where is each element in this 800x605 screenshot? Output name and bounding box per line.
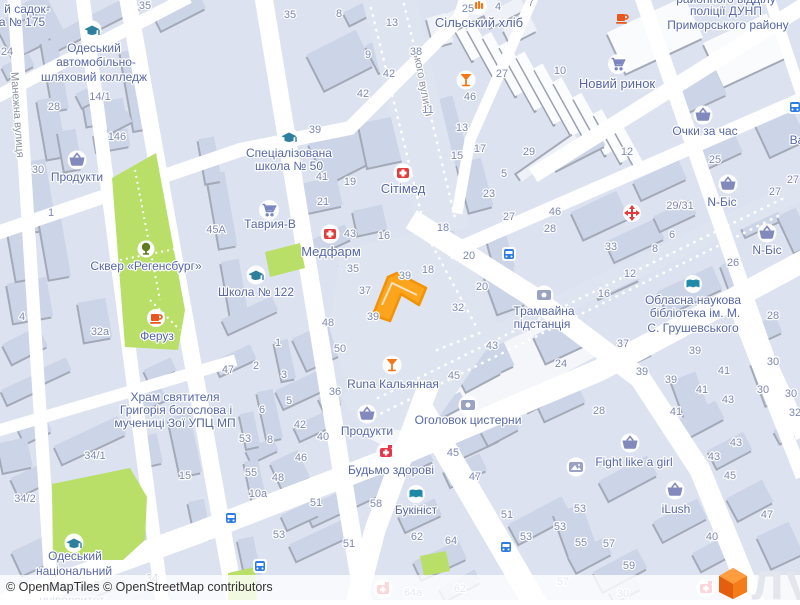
svg-text:47: 47: [761, 509, 773, 521]
svg-text:N-Біс: N-Біс: [752, 243, 781, 257]
svg-text:34/2: 34/2: [14, 493, 35, 505]
svg-text:27: 27: [787, 174, 799, 186]
svg-text:46: 46: [549, 206, 561, 218]
svg-text:41: 41: [670, 406, 682, 418]
svg-text:43: 43: [730, 437, 742, 449]
svg-text:45: 45: [448, 370, 460, 382]
svg-text:28: 28: [593, 405, 605, 417]
svg-text:30: 30: [757, 384, 769, 396]
svg-text:Сітімед: Сітімед: [381, 181, 426, 196]
svg-text:45: 45: [724, 470, 736, 482]
svg-text:Медфарм: Медфарм: [301, 244, 361, 259]
svg-text:6: 6: [669, 229, 675, 241]
svg-text:39: 39: [689, 345, 701, 357]
svg-text:146: 146: [108, 131, 126, 143]
svg-text:41: 41: [696, 384, 708, 396]
svg-text:Букініст: Букініст: [395, 503, 438, 517]
svg-text:Одеський: Одеський: [48, 549, 102, 563]
svg-text:47: 47: [469, 471, 481, 483]
svg-text:Runa Кальянная: Runa Кальянная: [347, 377, 439, 391]
svg-text:35: 35: [139, 0, 151, 12]
svg-text:8: 8: [336, 8, 342, 20]
svg-text:16: 16: [378, 230, 390, 242]
svg-text:5: 5: [286, 395, 292, 407]
svg-text:55: 55: [245, 467, 257, 479]
svg-text:39: 39: [309, 124, 321, 136]
svg-text:28: 28: [767, 310, 779, 322]
svg-text:24: 24: [1, 46, 13, 58]
svg-text:20: 20: [476, 281, 488, 293]
svg-text:53: 53: [554, 521, 566, 533]
svg-text:41: 41: [316, 171, 328, 183]
svg-text:43: 43: [486, 340, 498, 352]
svg-text:62: 62: [411, 531, 423, 543]
svg-text:N-Біс: N-Біс: [707, 195, 736, 209]
svg-text:й садок-: й садок-: [4, 2, 50, 16]
svg-text:37: 37: [359, 285, 371, 297]
svg-text:45: 45: [447, 447, 459, 459]
svg-text:Новий ринок: Новий ринок: [579, 76, 656, 91]
svg-text:2: 2: [253, 360, 259, 372]
svg-text:29: 29: [523, 146, 535, 158]
svg-text:48: 48: [322, 317, 334, 329]
svg-text:46: 46: [464, 91, 476, 103]
svg-text:Оголовок цистерни: Оголовок цистерни: [415, 413, 522, 427]
svg-text:43: 43: [344, 228, 356, 240]
svg-text:29/31: 29/31: [666, 200, 694, 212]
svg-text:41: 41: [718, 365, 730, 377]
svg-text:35: 35: [347, 263, 359, 275]
svg-text:46: 46: [295, 452, 307, 464]
svg-text:17: 17: [474, 143, 486, 155]
svg-text:32: 32: [789, 407, 800, 419]
svg-text:15: 15: [451, 150, 463, 162]
svg-text:Ва: Ва: [790, 133, 800, 147]
svg-text:5: 5: [501, 168, 507, 180]
svg-text:35: 35: [284, 9, 296, 21]
svg-text:лун: лун: [751, 553, 800, 600]
svg-text:55: 55: [575, 537, 587, 549]
svg-text:53: 53: [273, 529, 285, 541]
svg-text:39: 39: [636, 366, 648, 378]
svg-text:iLush: iLush: [662, 502, 691, 516]
svg-text:1: 1: [48, 207, 54, 219]
svg-text:8: 8: [652, 243, 658, 255]
svg-text:20: 20: [463, 250, 475, 262]
svg-text:шляховий колледж: шляховий колледж: [41, 70, 147, 84]
svg-text:42: 42: [294, 419, 306, 431]
svg-text:12: 12: [621, 146, 633, 158]
svg-text:33: 33: [605, 241, 617, 253]
svg-text:Продукти: Продукти: [341, 424, 393, 438]
svg-text:11: 11: [422, 104, 433, 116]
svg-text:7: 7: [528, 0, 534, 9]
svg-text:16: 16: [598, 288, 610, 300]
svg-text:Таврия-В: Таврия-В: [244, 217, 296, 231]
svg-text:15: 15: [179, 470, 191, 482]
svg-text:43: 43: [722, 394, 734, 406]
svg-text:12: 12: [624, 268, 636, 280]
svg-text:Очки за час: Очки за час: [672, 124, 737, 138]
svg-text:13: 13: [386, 17, 398, 29]
svg-text:19: 19: [344, 176, 356, 188]
svg-text:40: 40: [317, 431, 329, 443]
svg-text:30: 30: [785, 388, 797, 400]
svg-text:30: 30: [767, 356, 779, 368]
svg-text:42: 42: [383, 68, 395, 80]
svg-text:Григорія богослова і: Григорія богослова і: [120, 403, 232, 417]
svg-text:підстанція: підстанція: [514, 317, 571, 331]
svg-text:53: 53: [574, 503, 586, 515]
svg-text:48: 48: [272, 472, 284, 484]
svg-text:32: 32: [452, 302, 464, 314]
svg-text:53: 53: [520, 531, 532, 543]
svg-text:© OpenMapTiles © OpenStreetMap: © OpenMapTiles © OpenStreetMap contribut…: [6, 580, 273, 594]
svg-text:18: 18: [437, 222, 449, 234]
svg-text:28: 28: [544, 223, 556, 235]
svg-text:43: 43: [708, 451, 720, 463]
svg-text:а № 175: а № 175: [0, 15, 45, 29]
svg-text:Феруз: Феруз: [140, 329, 174, 343]
svg-text:13: 13: [456, 122, 468, 134]
svg-text:14/1: 14/1: [89, 91, 110, 103]
svg-text:32a: 32a: [91, 326, 110, 338]
svg-text:36: 36: [329, 386, 341, 398]
svg-text:51: 51: [343, 538, 355, 550]
svg-text:23: 23: [483, 188, 495, 200]
svg-text:школа № 50: школа № 50: [255, 159, 323, 173]
svg-text:6: 6: [259, 404, 265, 416]
svg-text:Будьмо здорові: Будьмо здорові: [348, 463, 434, 477]
svg-text:50: 50: [334, 343, 346, 355]
svg-text:58: 58: [370, 498, 382, 510]
svg-text:Храм святителя: Храм святителя: [130, 390, 219, 404]
svg-text:26: 26: [727, 257, 739, 269]
svg-text:мучениці Зої УПЦ МП: мучениці Зої УПЦ МП: [114, 416, 235, 430]
svg-text:10: 10: [554, 65, 566, 77]
svg-text:поліції ДУНП: поліції ДУНП: [690, 4, 762, 18]
svg-text:57: 57: [603, 538, 615, 550]
svg-text:39: 39: [665, 374, 677, 386]
svg-text:4: 4: [495, 1, 501, 13]
svg-text:30: 30: [32, 164, 44, 176]
svg-text:39: 39: [367, 311, 379, 323]
svg-text:39: 39: [399, 270, 411, 282]
svg-text:25: 25: [462, 3, 474, 15]
svg-text:4: 4: [19, 311, 25, 323]
svg-text:45A: 45A: [206, 224, 226, 236]
svg-text:Fight like a girl: Fight like a girl: [595, 455, 672, 469]
svg-text:Школа № 122: Школа № 122: [218, 285, 294, 299]
svg-text:51: 51: [501, 509, 513, 521]
svg-text:24: 24: [555, 358, 567, 370]
svg-text:51: 51: [310, 497, 322, 509]
svg-text:Приморського району: Приморського району: [667, 18, 788, 32]
svg-text:Продукти: Продукти: [51, 170, 103, 184]
svg-text:59: 59: [623, 560, 635, 572]
svg-text:37: 37: [617, 338, 629, 350]
svg-text:Сільський хліб: Сільський хліб: [435, 15, 523, 30]
svg-text:10a: 10a: [249, 488, 268, 500]
svg-text:47: 47: [222, 364, 234, 376]
svg-text:9: 9: [365, 49, 371, 61]
svg-text:3: 3: [281, 369, 287, 381]
svg-text:27: 27: [769, 186, 781, 198]
svg-text:27: 27: [503, 211, 515, 223]
svg-text:бібліотека ім. М.: бібліотека ім. М.: [650, 306, 740, 320]
svg-text:28: 28: [48, 101, 60, 113]
svg-text:8: 8: [267, 434, 273, 446]
svg-text:автомобільно-: автомобільно-: [56, 55, 136, 69]
svg-text:42: 42: [357, 88, 369, 100]
svg-text:1: 1: [275, 337, 281, 349]
svg-text:Обласна наукова: Обласна наукова: [645, 293, 741, 307]
svg-text:25: 25: [709, 154, 721, 166]
svg-text:Одеський: Одеський: [67, 41, 121, 55]
svg-text:Спеціалізована: Спеціалізована: [246, 146, 332, 160]
svg-text:38: 38: [410, 46, 422, 58]
svg-text:53: 53: [239, 433, 251, 445]
svg-text:Сквер «Регенсбург»: Сквер «Регенсбург»: [90, 259, 202, 273]
svg-text:27: 27: [496, 68, 508, 80]
svg-text:34/1: 34/1: [84, 450, 105, 462]
svg-text:40: 40: [706, 531, 718, 543]
svg-text:64: 64: [445, 535, 457, 547]
svg-text:С. Грушевського: С. Грушевського: [647, 321, 739, 335]
svg-text:18: 18: [422, 264, 434, 276]
svg-text:Трамвайна: Трамвайна: [513, 304, 574, 318]
svg-text:21: 21: [317, 196, 329, 208]
